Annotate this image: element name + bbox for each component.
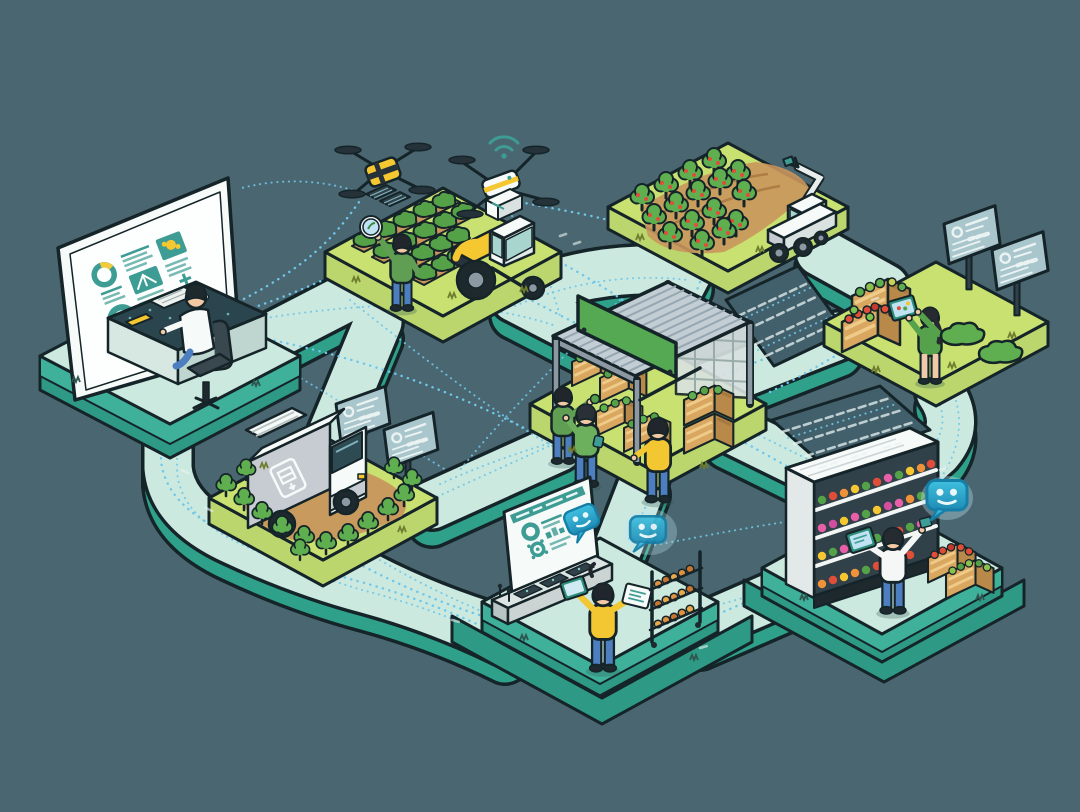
illustration-stage <box>0 0 1080 812</box>
floating-chatbot-bubble <box>623 509 677 555</box>
scene-canvas <box>0 0 1080 812</box>
